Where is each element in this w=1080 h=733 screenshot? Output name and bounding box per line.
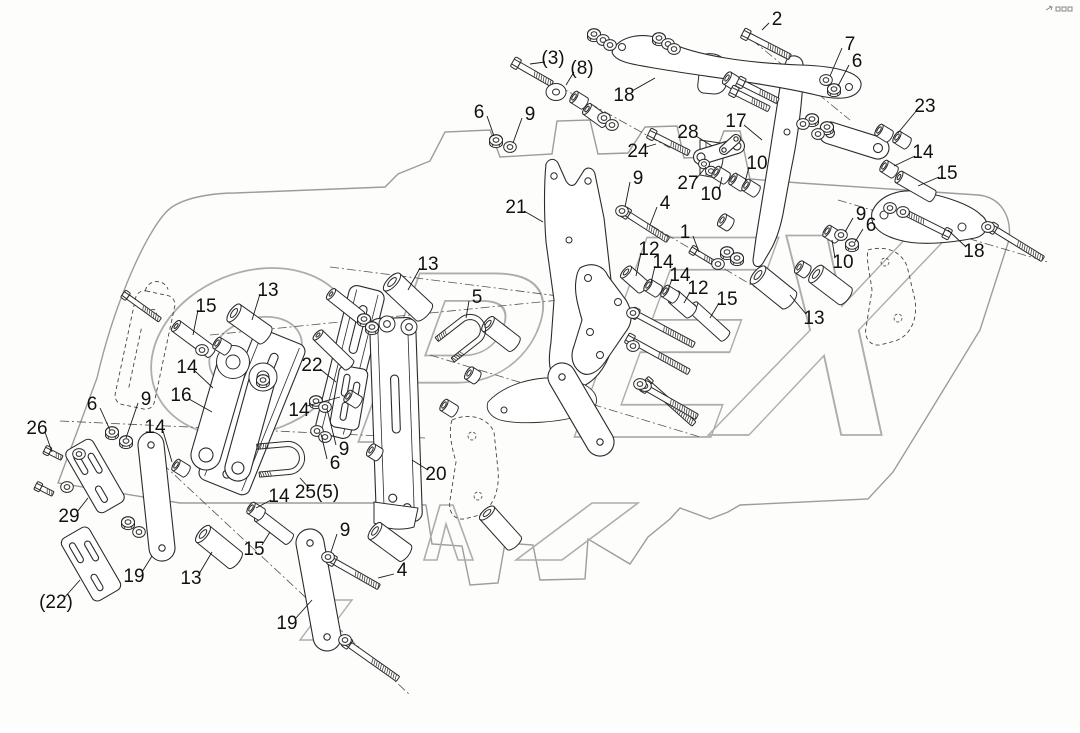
svg-text:14: 14 — [912, 142, 934, 163]
svg-text:21: 21 — [505, 197, 526, 218]
svg-text:6: 6 — [852, 51, 863, 72]
svg-text:23: 23 — [914, 96, 935, 117]
svg-text:4: 4 — [660, 193, 671, 214]
svg-text:25(5): 25(5) — [295, 482, 339, 503]
svg-text:24: 24 — [627, 141, 649, 162]
svg-text:13: 13 — [803, 308, 824, 329]
svg-text:29: 29 — [58, 506, 79, 527]
svg-text:22: 22 — [301, 355, 322, 376]
svg-text:2: 2 — [772, 9, 783, 30]
svg-text:(8): (8) — [570, 58, 593, 79]
svg-text:20: 20 — [425, 464, 446, 485]
svg-text:13: 13 — [180, 568, 201, 589]
svg-text:10: 10 — [832, 252, 853, 273]
svg-text:12: 12 — [687, 278, 708, 299]
svg-text:18: 18 — [613, 85, 634, 106]
svg-text:9: 9 — [633, 168, 644, 189]
svg-text:13: 13 — [257, 280, 278, 301]
svg-text:9: 9 — [525, 104, 536, 125]
svg-text:10: 10 — [700, 184, 721, 205]
svg-text:17: 17 — [725, 111, 746, 132]
svg-text:14: 14 — [268, 486, 290, 507]
svg-text:15: 15 — [936, 163, 957, 184]
svg-text:19: 19 — [276, 613, 297, 634]
svg-text:4: 4 — [397, 560, 408, 581]
svg-text:10: 10 — [746, 153, 767, 174]
svg-text:14: 14 — [176, 357, 198, 378]
svg-text:(22): (22) — [39, 592, 73, 613]
svg-text:28: 28 — [677, 122, 698, 143]
svg-text:6: 6 — [474, 102, 485, 123]
svg-text:16: 16 — [170, 385, 191, 406]
svg-text:26: 26 — [26, 418, 47, 439]
svg-text:19: 19 — [123, 566, 144, 587]
svg-text:18: 18 — [963, 241, 984, 262]
svg-text:6: 6 — [330, 453, 341, 474]
svg-text:14: 14 — [144, 417, 166, 438]
svg-text:13: 13 — [417, 254, 438, 275]
svg-text:9: 9 — [339, 439, 350, 460]
svg-text:9: 9 — [340, 520, 351, 541]
svg-text:15: 15 — [243, 539, 264, 560]
svg-text:14: 14 — [288, 400, 310, 421]
svg-text:1: 1 — [680, 222, 691, 243]
svg-text:(3): (3) — [541, 48, 564, 69]
svg-text:6: 6 — [866, 215, 877, 236]
svg-text:6: 6 — [87, 394, 98, 415]
svg-text:9: 9 — [856, 204, 867, 225]
svg-text:27: 27 — [677, 173, 698, 194]
svg-text:5: 5 — [472, 287, 483, 308]
svg-text:15: 15 — [195, 296, 216, 317]
svg-text:15: 15 — [716, 289, 737, 310]
svg-text:9: 9 — [141, 389, 152, 410]
